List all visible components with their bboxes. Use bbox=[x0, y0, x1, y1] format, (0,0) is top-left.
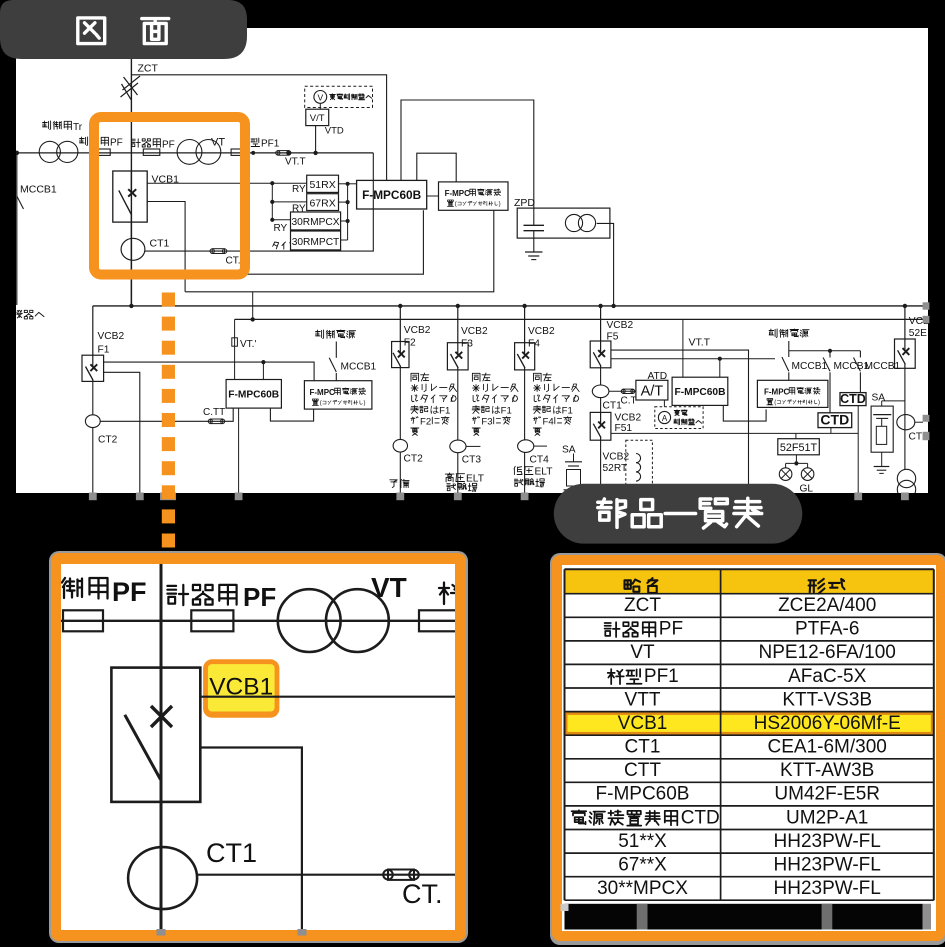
svg-text:AFaC-5X: AFaC-5X bbox=[788, 666, 866, 687]
svg-text:VT: VT bbox=[630, 642, 655, 663]
svg-text:はF1: はF1 bbox=[430, 406, 451, 417]
svg-text:F3: F3 bbox=[481, 416, 492, 427]
svg-text:RY: RY bbox=[292, 184, 306, 195]
svg-text:PF: PF bbox=[659, 619, 683, 640]
svg-text:ELT: ELT bbox=[535, 466, 553, 477]
svg-text:CEA1-6M/300: CEA1-6M/300 bbox=[768, 737, 887, 758]
svg-text:F1: F1 bbox=[98, 345, 110, 356]
svg-text:67RX: 67RX bbox=[309, 197, 335, 209]
svg-text:CTD: CTD bbox=[820, 412, 849, 428]
svg-text:C.TT: C.TT bbox=[203, 407, 225, 418]
svg-text:A: A bbox=[662, 414, 668, 423]
svg-text:CT4: CT4 bbox=[530, 455, 550, 466]
svg-text:CT.: CT. bbox=[402, 879, 443, 909]
svg-text:MCCB1: MCCB1 bbox=[20, 184, 57, 196]
svg-text:V: V bbox=[317, 92, 323, 102]
svg-text:ZCT: ZCT bbox=[624, 595, 661, 616]
svg-text:HH23PW-FL: HH23PW-FL bbox=[774, 855, 881, 876]
svg-text:30RMPCX: 30RMPCX bbox=[291, 217, 339, 228]
svg-text:): ) bbox=[364, 401, 366, 407]
svg-text:A/T: A/T bbox=[641, 384, 664, 400]
svg-text:VCB2: VCB2 bbox=[98, 331, 125, 342]
svg-text:MCCB1: MCCB1 bbox=[341, 362, 377, 373]
svg-text:52F51T: 52F51T bbox=[780, 442, 818, 454]
svg-text:HH23PW-FL: HH23PW-FL bbox=[774, 831, 881, 852]
svg-text:PF1: PF1 bbox=[644, 666, 679, 687]
svg-text:51**X: 51**X bbox=[618, 831, 667, 852]
svg-text:F-MPC: F-MPC bbox=[310, 388, 336, 397]
svg-text:PF: PF bbox=[110, 138, 123, 149]
svg-text:VT.T: VT.T bbox=[285, 157, 306, 168]
svg-text:NPE12-6FA/100: NPE12-6FA/100 bbox=[759, 642, 896, 663]
svg-text:CT1: CT1 bbox=[206, 838, 257, 868]
svg-text:UM42F-E5R: UM42F-E5R bbox=[774, 784, 880, 805]
svg-text:VCB1: VCB1 bbox=[618, 713, 668, 734]
svg-text:ATD: ATD bbox=[648, 371, 668, 382]
svg-text:51RX: 51RX bbox=[309, 179, 335, 191]
svg-text:UM2P-A1: UM2P-A1 bbox=[786, 807, 868, 828]
svg-text:CT1: CT1 bbox=[603, 401, 623, 412]
svg-text:SA: SA bbox=[872, 393, 886, 404]
svg-text:CT1: CT1 bbox=[150, 238, 170, 250]
svg-text:): ) bbox=[818, 400, 820, 406]
svg-text:GL: GL bbox=[800, 484, 814, 495]
svg-text:(: ( bbox=[774, 400, 776, 406]
svg-text:ELT: ELT bbox=[466, 473, 484, 484]
svg-text:KTT-VS3B: KTT-VS3B bbox=[782, 689, 872, 710]
svg-text:VCB2: VCB2 bbox=[528, 326, 555, 337]
svg-text:F-MPC: F-MPC bbox=[764, 387, 790, 396]
svg-text:F-MPC: F-MPC bbox=[445, 189, 471, 198]
svg-text:F-MPC60B: F-MPC60B bbox=[675, 387, 726, 398]
svg-text:ZPD: ZPD bbox=[514, 197, 535, 209]
svg-text:): ) bbox=[499, 202, 501, 208]
svg-text:はF1: はF1 bbox=[491, 406, 512, 417]
svg-text:PTFA-6: PTFA-6 bbox=[795, 619, 859, 640]
svg-text:52E: 52E bbox=[909, 328, 927, 339]
svg-text:CT3: CT3 bbox=[462, 455, 482, 466]
svg-text:VCB2: VCB2 bbox=[603, 452, 630, 463]
svg-text:PF: PF bbox=[243, 582, 276, 612]
svg-text:VCB2: VCB2 bbox=[607, 320, 634, 331]
svg-text:F51: F51 bbox=[615, 423, 633, 434]
svg-text:F-MPC60B: F-MPC60B bbox=[596, 784, 690, 805]
svg-text:PF: PF bbox=[162, 140, 175, 151]
svg-text:CTD: CTD bbox=[840, 392, 866, 406]
svg-text:HH23PW-FL: HH23PW-FL bbox=[774, 878, 881, 899]
svg-text:30RMPCT: 30RMPCT bbox=[292, 237, 340, 248]
svg-text:F3: F3 bbox=[461, 339, 473, 350]
svg-text:VCB2: VCB2 bbox=[615, 413, 642, 424]
svg-text:67**X: 67**X bbox=[618, 855, 667, 876]
svg-text:F-MPC60B: F-MPC60B bbox=[362, 188, 421, 202]
svg-text:F2: F2 bbox=[420, 416, 431, 427]
svg-text:PF1: PF1 bbox=[261, 139, 280, 150]
svg-text:CTD: CTD bbox=[681, 807, 720, 828]
svg-text:(: ( bbox=[320, 401, 322, 407]
svg-text:CT1: CT1 bbox=[625, 737, 661, 758]
svg-text:52RT: 52RT bbox=[603, 463, 628, 474]
svg-text:MCCB1: MCCB1 bbox=[792, 361, 828, 372]
svg-text:F4: F4 bbox=[543, 416, 555, 427]
svg-text:VT.T: VT.T bbox=[689, 337, 711, 349]
svg-text:はF1: はF1 bbox=[552, 406, 573, 417]
svg-text:VT: VT bbox=[211, 137, 225, 149]
svg-text:VT.': VT.' bbox=[240, 339, 256, 350]
svg-text:F5: F5 bbox=[607, 332, 619, 343]
svg-text:30**MPCX: 30**MPCX bbox=[597, 878, 688, 899]
svg-text:VTD: VTD bbox=[325, 126, 344, 137]
svg-text:CTT: CTT bbox=[624, 760, 661, 781]
svg-text:F2: F2 bbox=[404, 338, 416, 349]
svg-text:VCB2: VCB2 bbox=[461, 326, 488, 337]
svg-text:RY: RY bbox=[274, 223, 288, 234]
svg-text:VTT: VTT bbox=[625, 689, 661, 710]
svg-text:CT2: CT2 bbox=[404, 454, 424, 465]
svg-text:C.T: C.T bbox=[621, 396, 637, 407]
svg-text:PF: PF bbox=[112, 577, 147, 607]
svg-text:V/T: V/T bbox=[310, 113, 325, 124]
svg-text:Tr: Tr bbox=[73, 122, 83, 133]
svg-text:KTT-AW3B: KTT-AW3B bbox=[780, 760, 874, 781]
svg-text:CT.: CT. bbox=[226, 256, 241, 267]
svg-text:F4: F4 bbox=[528, 339, 540, 350]
svg-text:ZCT: ZCT bbox=[138, 63, 159, 75]
svg-text:F-MPC60B: F-MPC60B bbox=[228, 390, 279, 401]
svg-text:CT2: CT2 bbox=[98, 435, 118, 446]
svg-text:VT: VT bbox=[371, 572, 407, 603]
svg-text:VCB2: VCB2 bbox=[404, 325, 431, 336]
svg-text:HS2006Y-06Mf-E: HS2006Y-06Mf-E bbox=[754, 713, 901, 734]
svg-text:(: ( bbox=[455, 202, 457, 208]
svg-text:ZCE2A/400: ZCE2A/400 bbox=[778, 595, 876, 616]
